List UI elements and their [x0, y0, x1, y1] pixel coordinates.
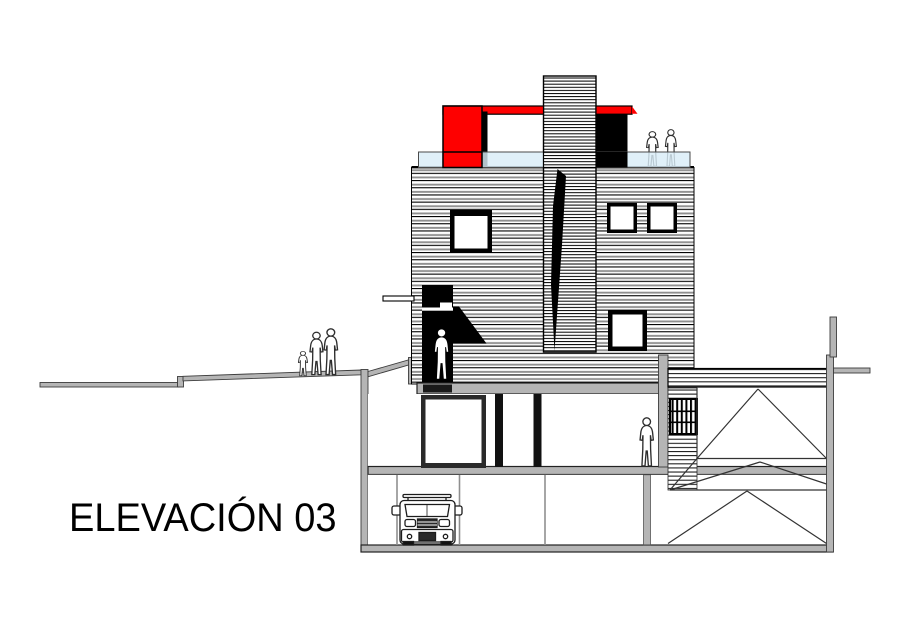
- annex-right-wall: [827, 317, 871, 552]
- chimney-base: [544, 152, 597, 168]
- ground-floor-window: [421, 395, 486, 468]
- roof-ledge: [834, 368, 871, 373]
- annex-parapet: [668, 369, 827, 388]
- parapet-post: [830, 317, 837, 357]
- right-room-wall: [659, 355, 669, 467]
- man-walking-icon: [324, 329, 337, 375]
- red-volume-base: [443, 152, 482, 168]
- red-roof-tip: [632, 107, 638, 114]
- drawing-title: ELEVACIÓN 03: [69, 496, 373, 541]
- window-upper-left: [450, 210, 492, 253]
- woman-walking-icon: [310, 332, 323, 374]
- window-upper-right-2: [647, 203, 677, 233]
- window-mid-right: [608, 310, 647, 351]
- garage-pier: [644, 475, 651, 545]
- chimney: [544, 76, 597, 352]
- elevation-sheet: ELEVACIÓN 03: [0, 0, 911, 628]
- pedestrians-group: [298, 329, 337, 376]
- door-lintel: [423, 385, 452, 393]
- black-volume-base: [596, 152, 628, 168]
- red-roof-cap: [596, 106, 632, 114]
- car-icon: [392, 495, 462, 546]
- ground-floor-room: [368, 394, 658, 467]
- foundation-slab: [361, 545, 833, 552]
- louver-vent: [670, 399, 697, 434]
- window-upper-right-1: [607, 203, 637, 233]
- canopy-ledge: [383, 296, 414, 301]
- ground-floor-slab: [417, 383, 663, 394]
